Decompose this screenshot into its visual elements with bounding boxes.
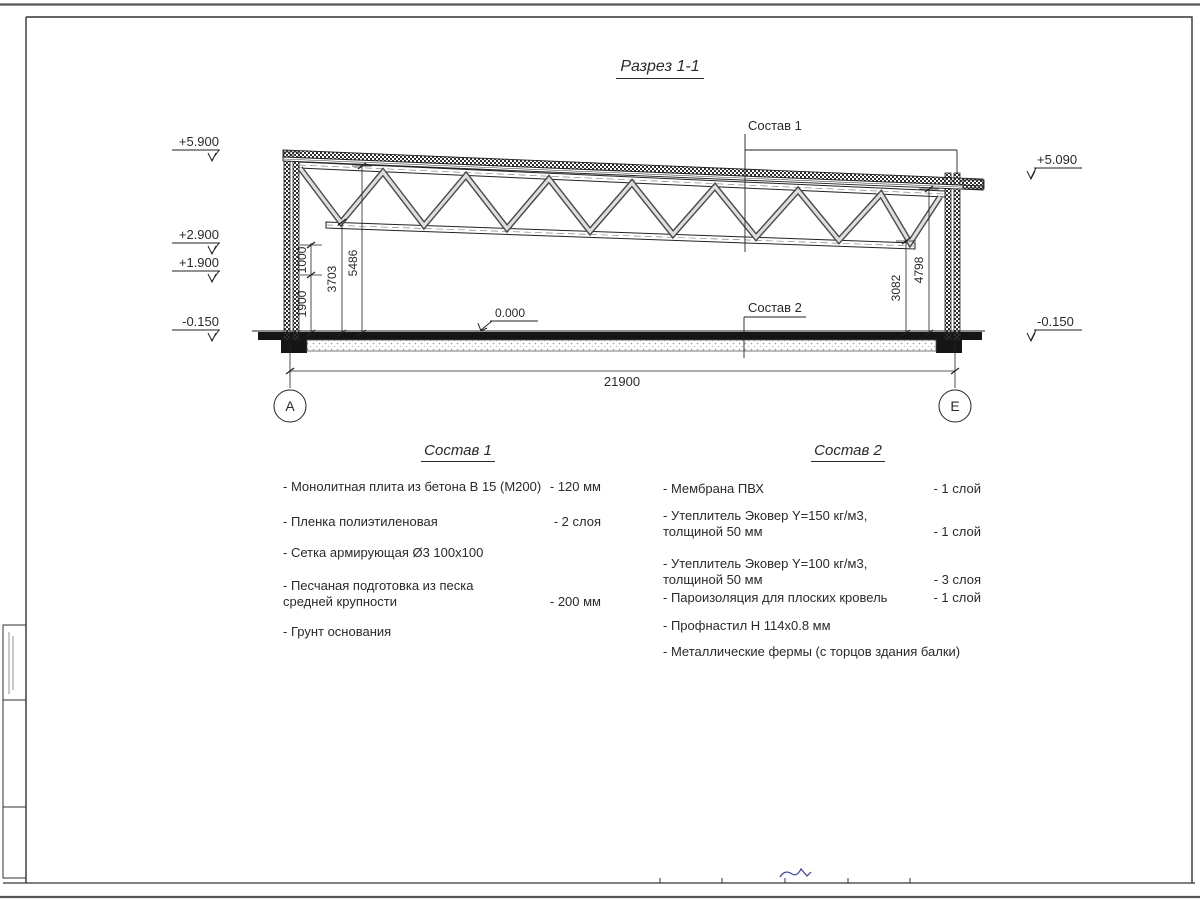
- list-item: - Песчаная подготовка из песка средней к…: [283, 578, 601, 611]
- list-item: - Мембрана ПВХ - 1 слой: [663, 481, 981, 497]
- composition1-heading: Состав 1: [378, 442, 538, 462]
- list-item: - Грунт основания: [283, 624, 601, 640]
- list-item: - Монолитная плита из бетона В 15 (М200)…: [283, 479, 601, 495]
- list-item: - Металлические фермы (с торцов здания б…: [663, 644, 981, 660]
- list-item: - Пленка полиэтиленовая - 2 слоя: [283, 514, 601, 530]
- list-item: - Сетка армирующая Ø3 100х100: [283, 545, 601, 561]
- drawing-sheet: 1900 1000 3703 5486 3082 4798 21900 А Е: [0, 0, 1200, 900]
- composition2-heading: Состав 2: [768, 442, 928, 462]
- list-item: - Профнастил Н 114х0.8 мм: [663, 618, 981, 634]
- text-overlay: Разрез 1-1 Состав 1 Состав 2 - Монолитна…: [0, 0, 1200, 900]
- drawing-title: Разрез 1-1: [560, 58, 760, 79]
- list-item: - Утеплитель Эковер Y=150 кг/м3, толщино…: [663, 508, 981, 541]
- list-item: - Утеплитель Эковер Y=100 кг/м3, толщино…: [663, 556, 981, 589]
- list-item: - Пароизоляция для плоских кровель - 1 с…: [663, 590, 981, 606]
